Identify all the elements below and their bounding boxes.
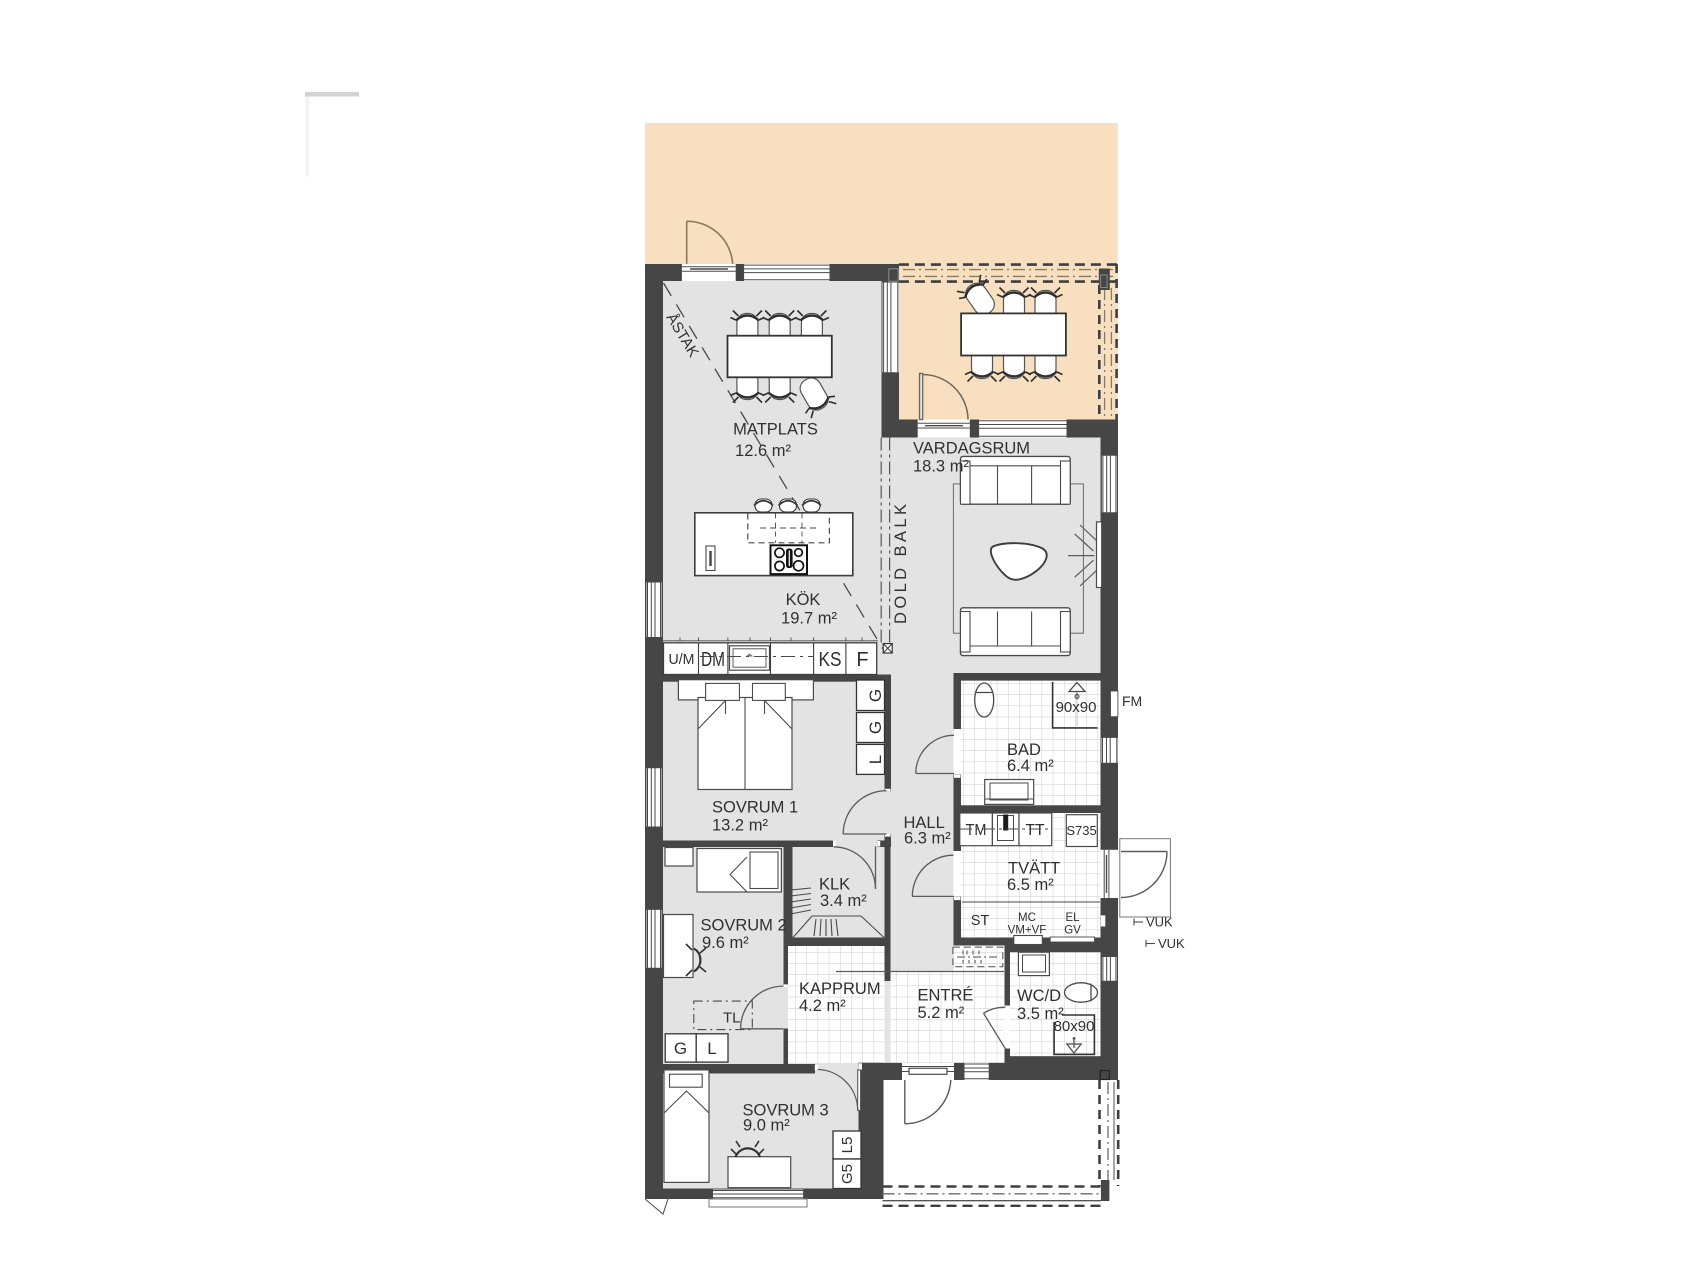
svg-text:KAPPRUM: KAPPRUM bbox=[799, 980, 881, 998]
svg-text:L: L bbox=[707, 1039, 716, 1058]
svg-text:SOVRUM 1: SOVRUM 1 bbox=[712, 799, 798, 817]
svg-text:13.2 m²: 13.2 m² bbox=[712, 817, 768, 835]
svg-text:DOLD BALK: DOLD BALK bbox=[892, 504, 910, 624]
svg-text:G: G bbox=[866, 721, 885, 734]
svg-text:TVÄTT: TVÄTT bbox=[1008, 860, 1060, 878]
svg-text:VUK: VUK bbox=[1158, 936, 1185, 951]
svg-text:GV: GV bbox=[1064, 925, 1081, 937]
svg-text:VARDAGSRUM: VARDAGSRUM bbox=[913, 440, 1030, 458]
svg-text:WC/D: WC/D bbox=[1017, 987, 1061, 1005]
svg-text:90x90: 90x90 bbox=[1056, 699, 1097, 716]
svg-text:3.4 m²: 3.4 m² bbox=[820, 892, 867, 910]
svg-text:VUK: VUK bbox=[1146, 915, 1173, 930]
svg-text:MATPLATS: MATPLATS bbox=[733, 421, 818, 439]
svg-text:19.7 m²: 19.7 m² bbox=[781, 610, 837, 628]
svg-text:G: G bbox=[866, 689, 885, 702]
svg-text:5.2 m²: 5.2 m² bbox=[918, 1004, 965, 1022]
svg-text:L5: L5 bbox=[839, 1137, 856, 1154]
svg-text:FM: FM bbox=[1122, 693, 1142, 709]
svg-text:TT: TT bbox=[1026, 822, 1045, 839]
svg-text:TM: TM bbox=[966, 822, 987, 839]
svg-text:4.2 m²: 4.2 m² bbox=[799, 997, 846, 1015]
svg-text:TL: TL bbox=[723, 1010, 741, 1027]
svg-text:L: L bbox=[866, 755, 885, 764]
svg-text:DM: DM bbox=[701, 649, 725, 671]
svg-text:MC: MC bbox=[1018, 912, 1036, 924]
svg-text:VM+VF: VM+VF bbox=[1008, 925, 1047, 937]
svg-text:6.5 m²: 6.5 m² bbox=[1007, 876, 1054, 894]
svg-text:G5: G5 bbox=[839, 1164, 856, 1184]
svg-text:6.3 m²: 6.3 m² bbox=[904, 830, 951, 848]
svg-text:KÖK: KÖK bbox=[786, 591, 821, 609]
svg-text:KLK: KLK bbox=[819, 876, 850, 894]
svg-text:18.3 m²: 18.3 m² bbox=[913, 458, 969, 476]
svg-text:S735: S735 bbox=[1066, 823, 1096, 838]
svg-text:SOVRUM 2: SOVRUM 2 bbox=[701, 917, 787, 935]
svg-text:KS: KS bbox=[819, 649, 842, 671]
svg-text:EL: EL bbox=[1065, 912, 1080, 924]
svg-text:9.6 m²: 9.6 m² bbox=[702, 934, 749, 952]
svg-text:9.0 m²: 9.0 m² bbox=[743, 1117, 790, 1135]
svg-text:G: G bbox=[674, 1039, 687, 1058]
svg-text:F: F bbox=[856, 649, 868, 671]
svg-text:ST: ST bbox=[971, 913, 990, 929]
svg-text:U/M: U/M bbox=[669, 651, 695, 668]
svg-text:6.4 m²: 6.4 m² bbox=[1007, 757, 1054, 775]
svg-text:3.5 m²: 3.5 m² bbox=[1017, 1005, 1064, 1023]
svg-text:ENTRÉ: ENTRÉ bbox=[918, 986, 974, 1005]
svg-text:12.6 m²: 12.6 m² bbox=[735, 442, 791, 460]
